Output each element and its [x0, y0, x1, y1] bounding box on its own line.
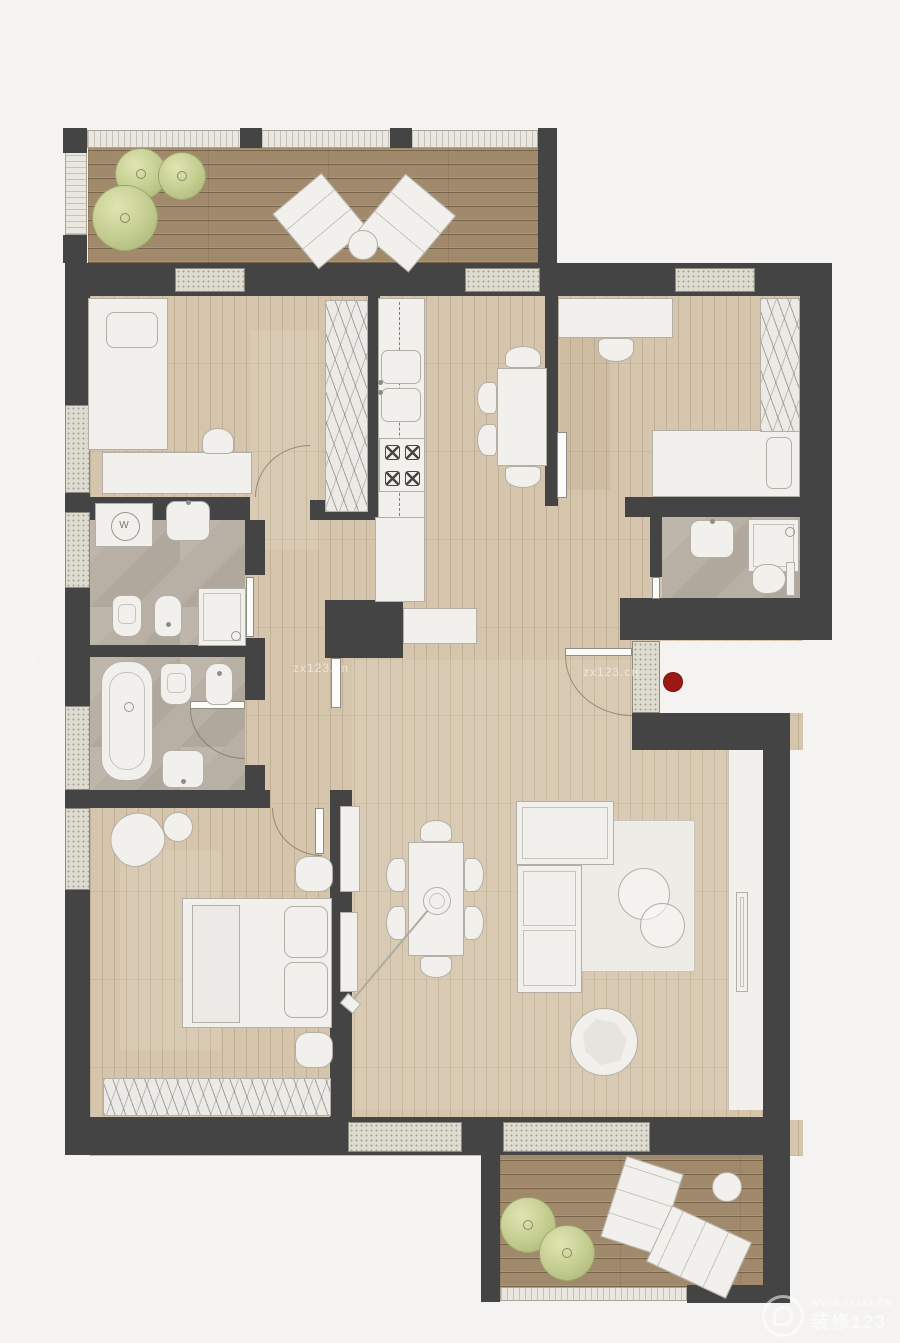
burner-icon — [405, 445, 420, 460]
entry-door-leaf — [565, 648, 632, 656]
desk — [102, 452, 252, 494]
window-bedroom1-terrace — [175, 268, 245, 292]
chair — [386, 858, 406, 892]
sink — [166, 501, 210, 541]
brand-name: 装修123 — [811, 1308, 893, 1334]
sideboard — [340, 806, 360, 892]
terrace-left-railing — [65, 150, 87, 235]
wall-right-top — [800, 263, 832, 610]
toilet — [160, 663, 192, 705]
ensuite-sliding-door — [652, 577, 660, 599]
wall-entry-bottom — [632, 713, 790, 750]
pillow — [284, 906, 328, 958]
floor-plan: W — [0, 0, 900, 1343]
terrace-bottom-pillar-left — [481, 1155, 500, 1302]
toilet-tank — [786, 562, 795, 596]
door-living-terrace — [503, 1122, 650, 1152]
faucet — [181, 779, 186, 784]
terrace-pillar — [63, 235, 87, 263]
kitchen-cabinet — [375, 517, 425, 602]
desk-chair — [598, 338, 634, 362]
terrace-pillar — [63, 128, 87, 153]
window-left-bedroom1 — [65, 405, 90, 493]
bathtub-drain — [124, 702, 134, 712]
coffee-table — [640, 903, 685, 948]
bedroom3-sliding-door — [557, 432, 567, 498]
bathtub-inner — [109, 672, 145, 770]
window-left-bedroom2 — [65, 808, 90, 890]
plant — [539, 1225, 595, 1281]
wall-bedroom2-top — [90, 790, 270, 808]
wall-ensuite-left — [650, 517, 662, 577]
terrace-side-table — [348, 230, 378, 260]
wall-bath2-right-a — [245, 657, 265, 700]
watermark-corner-logo: WWW.ZX123.CN 装修123 — [762, 1295, 900, 1337]
outside-right-area — [790, 750, 803, 1120]
bidet-tap — [166, 622, 171, 627]
wall-bedroom3-bottom — [625, 497, 800, 517]
pouf — [295, 856, 333, 892]
pillow — [284, 962, 328, 1018]
pillow — [106, 312, 158, 348]
chair — [420, 820, 452, 842]
toilet-bowl — [167, 673, 186, 693]
sofa-seat — [517, 865, 582, 993]
window-kitchen-terrace — [465, 268, 540, 292]
bath1-door-leaf — [246, 577, 254, 637]
brand-text-block: WWW.ZX123.CN 装修123 — [811, 1298, 893, 1334]
wall-entry-top — [620, 598, 832, 640]
wardrobe — [325, 300, 368, 512]
blanket — [583, 1019, 627, 1065]
shower — [198, 588, 246, 646]
shower-drain — [785, 527, 795, 537]
pillow — [766, 437, 792, 489]
shower-drain — [231, 631, 241, 641]
bed-throw — [192, 905, 240, 1023]
watermark-center: zx123.cn — [293, 661, 349, 675]
sideboard — [340, 912, 358, 992]
wardrobe — [103, 1078, 331, 1116]
kitchen-table — [497, 368, 547, 466]
wall-bath-divider — [90, 645, 250, 657]
faucet — [378, 380, 383, 385]
floor-pouf — [570, 1008, 638, 1076]
chair — [477, 382, 497, 414]
tv — [736, 892, 748, 992]
stove — [379, 438, 425, 492]
chair — [505, 466, 541, 488]
faucet — [710, 519, 715, 524]
toilet-bowl — [118, 604, 136, 624]
chair — [464, 906, 484, 940]
window-left-bath1 — [65, 512, 90, 588]
plant — [92, 185, 158, 251]
desk-chair — [202, 428, 234, 454]
terrace-top-railing — [87, 130, 538, 148]
watermark-left-edge: zx123.cn — [0, 652, 56, 666]
window-bedroom3-top — [675, 268, 755, 292]
bidet — [154, 595, 182, 637]
burner-icon — [405, 471, 420, 486]
terrace-bottom-railing — [500, 1287, 687, 1301]
toilet — [752, 564, 786, 594]
sofa-chaise — [516, 801, 614, 865]
tv-screen — [740, 897, 744, 987]
pouf — [295, 1032, 333, 1068]
chair — [420, 956, 452, 978]
desk — [558, 298, 673, 338]
kitchen-sink — [381, 388, 421, 422]
washing-machine: W — [95, 503, 153, 547]
wall-central-column — [325, 600, 403, 658]
window-left-bath2 — [65, 706, 90, 790]
sink — [690, 520, 734, 558]
terrace-bottom-wall-right — [763, 1155, 790, 1302]
chair — [464, 858, 484, 892]
entry-red-marker — [663, 672, 683, 692]
washer-label: W — [96, 504, 152, 546]
sink — [162, 750, 204, 788]
chair — [477, 424, 497, 456]
burner-icon — [385, 445, 400, 460]
bathtub — [101, 661, 153, 781]
wall-bath2-right-b — [245, 765, 265, 790]
chair — [505, 346, 541, 368]
toilet — [112, 595, 142, 637]
terrace-pillar — [390, 128, 412, 148]
terrace-side-table — [712, 1172, 742, 1202]
lamp-bulb — [429, 893, 445, 909]
side-table — [163, 812, 193, 842]
lamp-shade — [423, 887, 451, 915]
faucet — [186, 500, 191, 505]
bidet — [205, 663, 233, 705]
brand-swirl-icon — [762, 1295, 804, 1337]
wall-living-right — [763, 750, 790, 1120]
terrace-pillar — [240, 128, 262, 148]
plant — [158, 152, 206, 200]
brand-url: WWW.ZX123.CN — [811, 1298, 893, 1308]
wardrobe — [760, 298, 800, 432]
sofa-cushion — [522, 807, 608, 859]
burner-icon — [385, 471, 400, 486]
watermark-right: zx123.cn — [583, 665, 639, 679]
terrace-pillar — [538, 128, 557, 263]
chair — [386, 906, 406, 940]
sofa-cushion — [523, 930, 576, 986]
sofa-cushion — [523, 871, 576, 926]
bidet-tap — [217, 671, 222, 676]
hall-cabinet — [403, 608, 477, 644]
faucet — [378, 390, 383, 395]
kitchen-sink — [381, 350, 421, 384]
wall-bath1-right-a — [245, 520, 265, 575]
window-living-bottom — [348, 1122, 462, 1152]
